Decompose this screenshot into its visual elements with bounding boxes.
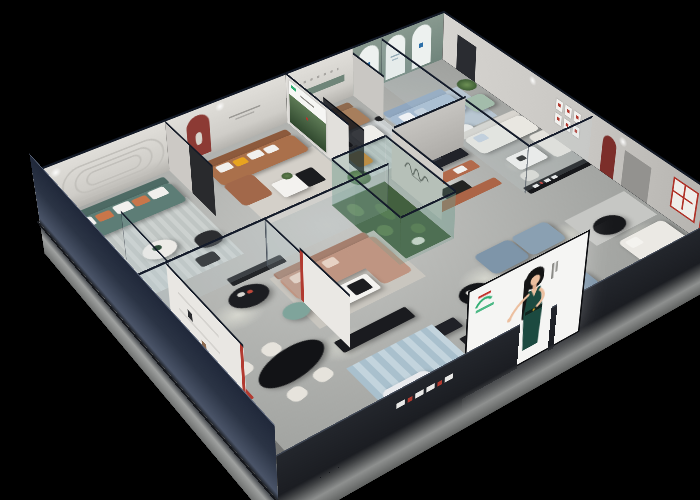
- signage-glyph-red: [437, 380, 442, 387]
- mini-frame: [565, 105, 572, 119]
- mini-frame: [556, 99, 563, 113]
- signage-glyph: [426, 383, 434, 393]
- poster-logo: [291, 85, 296, 92]
- dining-chair: [284, 384, 311, 404]
- wall-caption-line: [229, 105, 260, 119]
- mini-frame: [555, 112, 562, 126]
- red-grid-window: [670, 176, 699, 223]
- signage-glyph-red: [408, 396, 413, 403]
- arch-logo-mark: [419, 42, 423, 48]
- signage-glyph: [445, 373, 453, 382]
- niche-sculpture: [195, 131, 202, 146]
- downlight-glow: [618, 134, 627, 149]
- showroom-render: [0, 0, 700, 500]
- downlight-glow: [215, 100, 225, 113]
- downlight-glow: [529, 74, 537, 88]
- red-trim-strip: [300, 250, 304, 303]
- dark-red-arched-niche: [600, 132, 618, 180]
- signage-glyph: [415, 389, 424, 399]
- showroom-floor: [39, 58, 700, 499]
- dark-doorway: [456, 34, 476, 82]
- signage-glyph: [396, 399, 405, 409]
